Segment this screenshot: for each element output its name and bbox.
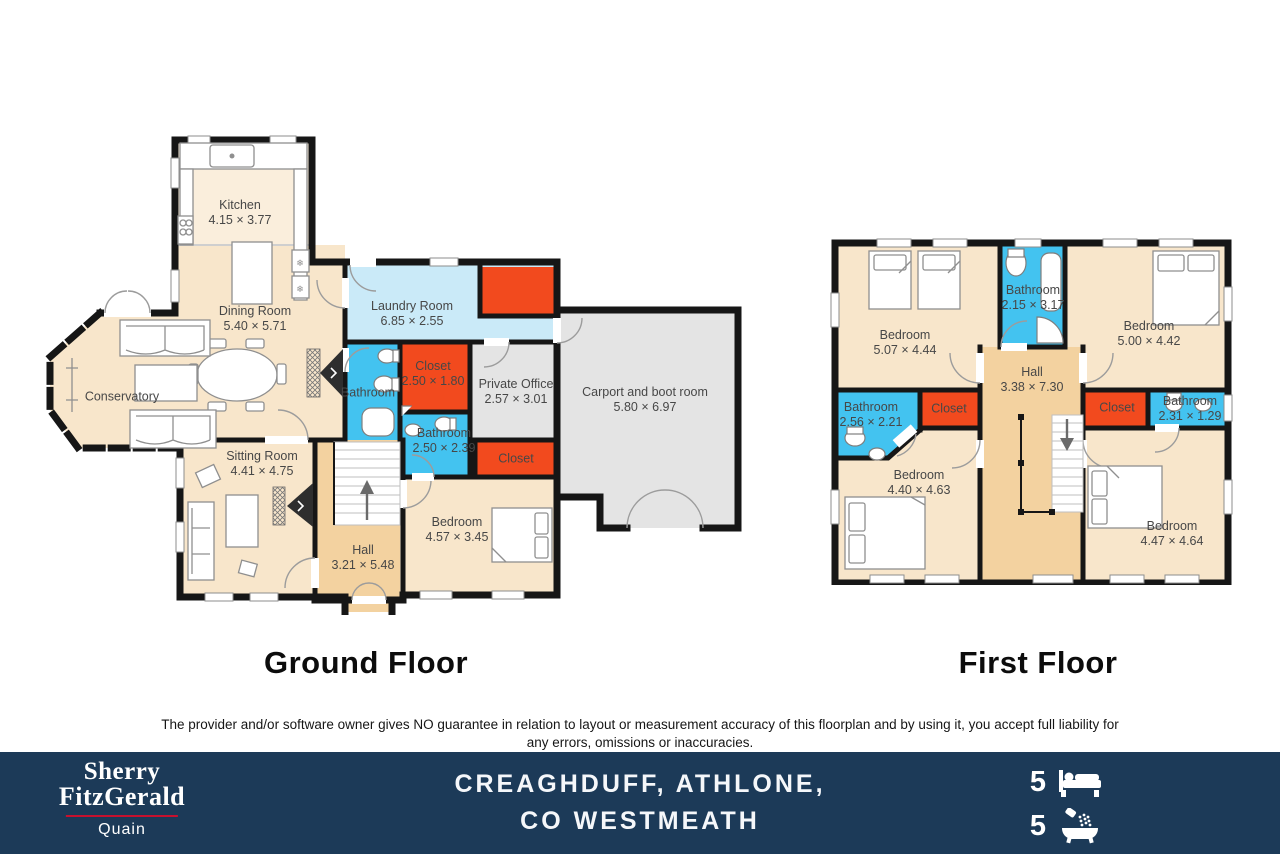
property-title: CREAGHDUFF, ATHLONE, CO WESTMEATH [454,766,825,840]
ground-floor-plan: ❄ ❄ [40,130,750,615]
room-label-bathroom2: Bathroom2.50 × 2.39 [413,426,476,456]
svg-text:❄: ❄ [296,258,304,268]
brand-sub: Quain [59,821,185,839]
ground-floor-svg: ❄ ❄ [40,130,750,615]
double-bed-icon [1153,251,1219,325]
floorplan-page: ❄ ❄ [0,0,1280,854]
bed-icon [492,508,552,562]
property-stats: 5 5 [1028,762,1102,846]
double-bed-icon [845,497,925,569]
room-label-closet1: Closet2.50 × 1.80 [402,359,465,389]
room-label-bedroom-bl: Bedroom4.40 × 4.63 [888,468,951,498]
first-floor-title: First Floor [959,645,1118,681]
bedroom-count-row: 5 [1028,762,1102,802]
room-label-dining: Dining Room5.40 × 5.71 [219,304,291,334]
room-label-bedroom-tr: Bedroom5.00 × 4.42 [1118,319,1181,349]
disclaimer-text: The provider and/or software owner gives… [160,716,1120,751]
room-label-bedroom-tl: Bedroom5.07 × 4.44 [874,328,937,358]
ground-floor-title: Ground Floor [264,645,468,681]
agency-logo: Sherry FitzGerald Quain [59,760,185,839]
room-label-sitting: Sitting Room4.41 × 4.75 [226,449,298,479]
footer-bar: Sherry FitzGerald Quain CREAGHDUFF, ATHL… [0,752,1280,854]
room-label-closet-left: Closet [931,402,966,417]
stairs-icon [334,442,400,525]
room-label-closet-right: Closet [1099,401,1134,416]
room-label-carport: Carport and boot room5.80 × 6.97 [582,385,708,415]
room-label-closet2: Closet [498,452,533,467]
bed-icon [1058,766,1102,798]
property-title-line2: CO WESTMEATH [454,803,825,840]
room-label-bathroom-top: Bathroom2.15 × 3.17 [1002,283,1065,313]
room-label-hall: Hall3.21 × 5.48 [332,543,395,573]
brand-line2: FitzGerald [59,784,185,810]
bathroom-count-row: 5 [1028,806,1102,846]
room-label-hall-ff: Hall3.38 × 7.30 [1001,365,1064,395]
room-label-bathroom1: Bathroom [341,386,395,401]
room-label-laundry: Laundry Room6.85 × 2.55 [371,299,453,329]
room-label-kitchen: Kitchen4.15 × 3.77 [209,198,272,228]
room-label-bedroom-br: Bedroom4.47 × 4.64 [1141,519,1204,549]
first-floor-plan: Bedroom5.07 × 4.44 Bathroom2.15 × 3.17 B… [825,235,1235,585]
room-label-bathroom-right: Bathroom2.31 × 1.29 [1159,394,1222,424]
room-label-bedroom-gf: Bedroom4.57 × 3.45 [426,515,489,545]
brand-rule [66,815,178,817]
bathroom-count: 5 [1028,810,1048,843]
room-label-conservatory: Conservatory [85,390,159,405]
gf-closet-top-fill [480,267,556,316]
room-label-bathroom-left: Bathroom2.56 × 2.21 [840,400,903,430]
svg-text:❄: ❄ [296,284,304,294]
bath-icon [1058,808,1102,844]
bedroom-count: 5 [1028,766,1048,799]
property-title-line1: CREAGHDUFF, ATHLONE, [454,766,825,803]
room-label-private-office: Private Office2.57 × 3.01 [479,377,554,407]
brand-line1: Sherry [59,760,185,784]
